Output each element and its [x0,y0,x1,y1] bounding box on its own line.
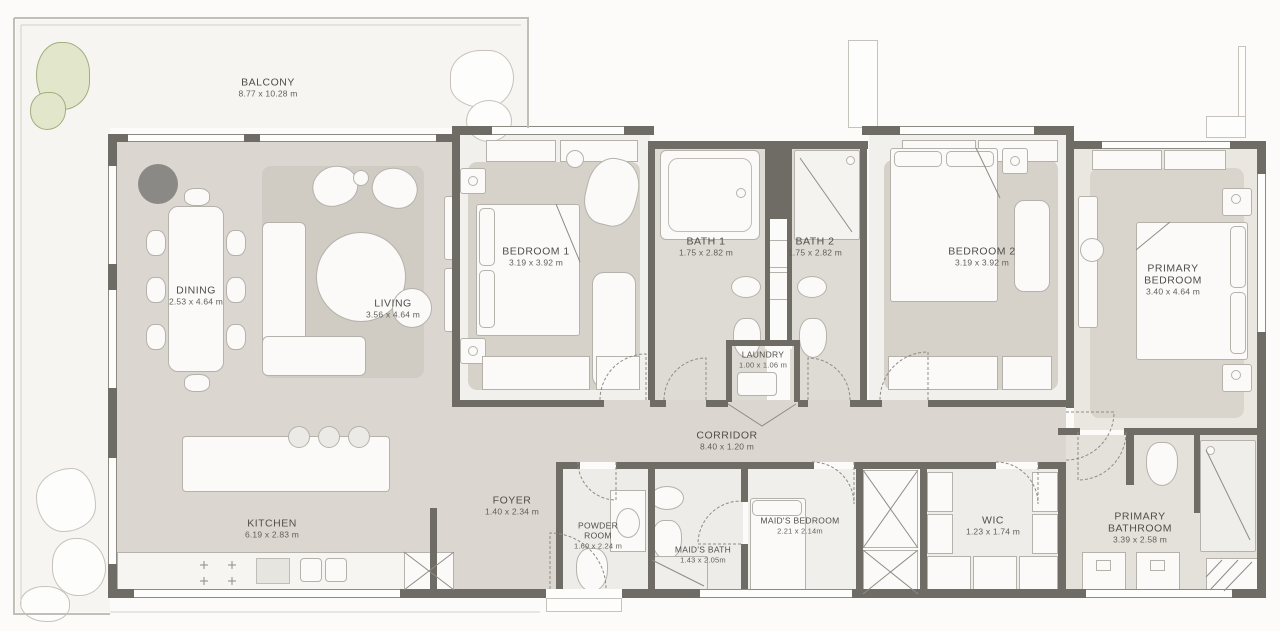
room-label-primary-bedroom: PRIMARY BEDROOM 3.40 x 4.64 m [1134,263,1212,298]
hob-burner-icons [200,561,236,585]
room-label-kitchen: KITCHEN 6.19 x 2.83 m [217,518,327,541]
room-dims: 6.19 x 2.83 m [217,531,327,541]
room-name: LIVING [338,298,448,310]
room-label-wic: WIC 1.23 x 1.74 m [943,515,1043,538]
room-label-maids-bedroom: MAID'S BEDROOM 2.21 x 2.14m [730,516,870,535]
room-dims: 1.40 x 2.34 m [462,508,562,518]
room-dims: 3.40 x 4.64 m [1134,288,1212,298]
room-name: BATH 2 [765,236,865,248]
room-dims: 2.53 x 4.64 m [141,298,251,308]
room-name: BATH 1 [656,236,756,248]
room-dims: 1.23 x 1.74 m [943,528,1043,538]
room-label-bath2: BATH 2 1.75 x 2.82 m [765,236,865,259]
room-label-foyer: FOYER 1.40 x 2.34 m [462,495,562,518]
mat-hatch [1206,560,1252,591]
room-label-primary-bathroom: PRIMARY BATHROOM 3.39 x 2.58 m [1098,511,1182,546]
room-dims: 1.00 x 1.06 m [730,361,796,370]
room-name: DINING [141,285,251,297]
room-dims: 1.75 x 2.82 m [765,249,865,259]
room-name: MAID'S BEDROOM [730,516,870,526]
pantry-x-mark [404,552,454,590]
room-dims: 3.19 x 3.92 m [481,259,591,269]
room-name: CORRIDOR [672,430,782,442]
room-dims: 3.39 x 2.58 m [1098,536,1182,546]
shower-glass-line [800,158,852,232]
room-name: WIC [943,515,1043,527]
room-name: MAID'S BATH [653,545,753,555]
room-dims: 1.60 x 2.24 m [569,542,627,551]
room-label-dining: DINING 2.53 x 4.64 m [141,285,251,308]
room-name: PRIMARY BEDROOM [1134,263,1212,287]
room-label-bath1: BATH 1 1.75 x 2.82 m [656,236,756,259]
room-dims: 3.56 x 4.64 m [338,311,448,321]
room-dims: 1.75 x 2.82 m [656,249,756,259]
room-name: FOYER [462,495,562,507]
floor-plan: BALCONY 8.77 x 10.28 m DINING 2.53 x 4.6… [0,0,1280,631]
laundry-bifold-chevron [728,404,796,426]
room-label-bedroom2: BEDROOM 2 3.19 x 3.92 m [927,246,1037,269]
shower-glass-line [1206,450,1250,540]
room-dims: 8.77 x 10.28 m [203,90,333,100]
room-label-powder-room: POWDER ROOM 1.60 x 2.24 m [569,521,627,550]
room-name: KITCHEN [217,518,327,530]
plan-linework [0,0,1280,631]
room-dims: 2.21 x 2.14m [730,527,870,536]
detail-lines [200,148,1252,594]
room-name: PRIMARY BATHROOM [1098,511,1182,535]
room-label-balcony: BALCONY 8.77 x 10.28 m [203,77,333,100]
room-label-bedroom1: BEDROOM 1 3.19 x 3.92 m [481,246,591,269]
room-label-corridor: CORRIDOR 8.40 x 1.20 m [672,430,782,453]
room-label-maids-bath: MAID'S BATH 1.43 x 2.05m [653,545,753,564]
room-name: LAUNDRY [730,350,796,360]
room-dims: 1.43 x 2.05m [653,556,753,565]
room-label-living: LIVING 3.56 x 4.64 m [338,298,448,321]
room-name: POWDER ROOM [569,521,627,541]
room-label-laundry: LAUNDRY 1.00 x 1.06 m [730,350,796,369]
shaft-x-marks [863,470,918,594]
room-dims: 8.40 x 1.20 m [672,443,782,453]
room-name: BEDROOM 2 [927,246,1037,258]
room-name: BALCONY [203,77,333,89]
room-name: BEDROOM 1 [481,246,591,258]
room-dims: 3.19 x 3.92 m [927,259,1037,269]
door-swing-arcs [550,352,1126,589]
